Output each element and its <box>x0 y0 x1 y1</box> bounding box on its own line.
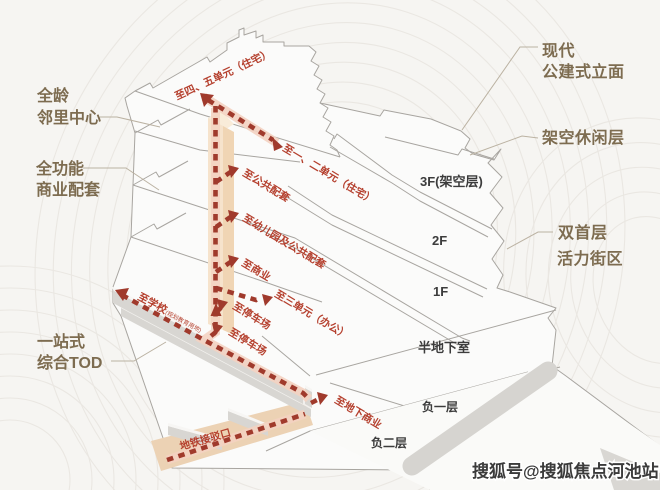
svg-text:架空休闲层: 架空休闲层 <box>541 128 625 147</box>
svg-text:双首层: 双首层 <box>558 223 608 242</box>
svg-text:综合TOD: 综合TOD <box>37 353 103 372</box>
svg-text:公建式立面: 公建式立面 <box>542 62 625 81</box>
svg-text:2F: 2F <box>432 233 447 248</box>
svg-text:1F: 1F <box>433 284 448 299</box>
svg-text:3F(架空层): 3F(架空层) <box>420 174 483 189</box>
svg-text:搜狐号@搜狐焦点河池站: 搜狐号@搜狐焦点河池站 <box>472 461 659 481</box>
svg-text:负二层: 负二层 <box>371 435 407 450</box>
svg-text:商业配套: 商业配套 <box>36 180 101 199</box>
svg-text:一站式: 一站式 <box>37 332 85 351</box>
svg-text:全龄: 全龄 <box>36 86 70 105</box>
svg-text:负一层: 负一层 <box>422 399 458 414</box>
svg-text:现代: 现代 <box>542 41 575 60</box>
svg-text:半地下室: 半地下室 <box>418 340 470 355</box>
svg-text:邻里中心: 邻里中心 <box>37 108 101 127</box>
svg-text:全功能: 全功能 <box>35 159 84 178</box>
svg-text:活力街区: 活力街区 <box>557 249 623 268</box>
